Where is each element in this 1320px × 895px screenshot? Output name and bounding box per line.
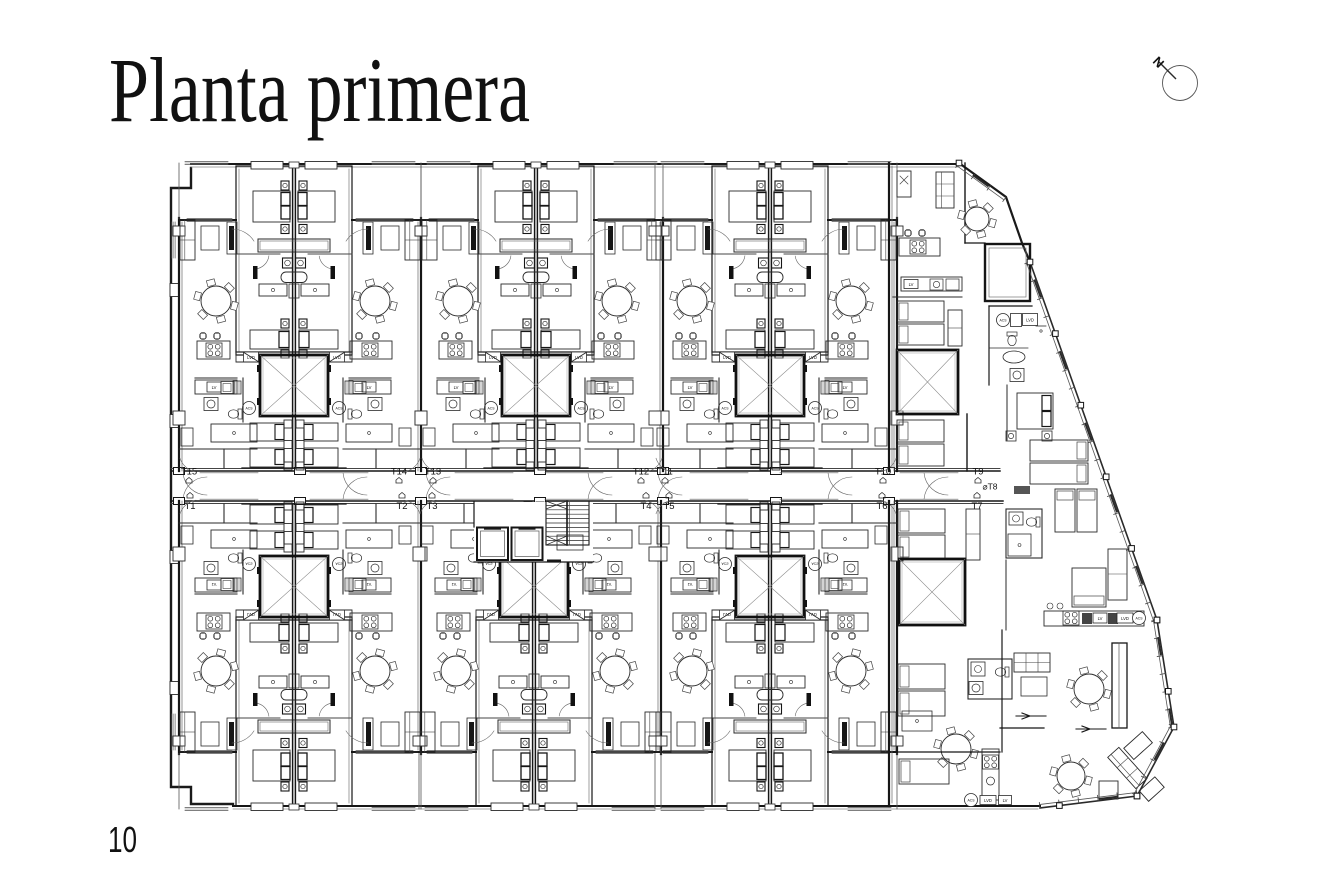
svg-text:LV: LV <box>688 385 693 390</box>
svg-text:ACS: ACS <box>336 407 344 411</box>
svg-text:T3: T3 <box>426 501 437 512</box>
svg-text:ACS: ACS <box>1136 617 1144 621</box>
svg-text:ACS: ACS <box>722 407 730 411</box>
svg-text:ACS: ACS <box>1000 319 1008 323</box>
svg-text:ACS: ACS <box>812 407 820 411</box>
svg-text:ACS: ACS <box>968 799 976 803</box>
svg-text:LV: LV <box>367 385 372 390</box>
svg-text:ACS: ACS <box>812 561 820 565</box>
svg-text:Planta primera: Planta primera <box>109 39 530 141</box>
svg-text:T2: T2 <box>396 501 407 512</box>
svg-text:LV: LV <box>1098 616 1103 621</box>
svg-text:LV: LV <box>1003 798 1008 803</box>
svg-text:LV: LV <box>843 582 848 587</box>
svg-text:LV: LV <box>454 385 459 390</box>
svg-text:T4: T4 <box>640 501 651 512</box>
svg-text:T1: T1 <box>184 501 195 512</box>
svg-text:T13: T13 <box>425 467 441 478</box>
svg-text:T15: T15 <box>181 467 197 478</box>
svg-text:LV: LV <box>607 582 612 587</box>
svg-text:LVD: LVD <box>1026 317 1034 322</box>
svg-text:LV: LV <box>609 385 614 390</box>
svg-text:LV: LV <box>909 282 914 287</box>
svg-text:⌀T8: ⌀T8 <box>982 482 997 492</box>
svg-text:LV: LV <box>688 582 693 587</box>
svg-text:ACS: ACS <box>246 407 254 411</box>
svg-text:ACS: ACS <box>488 407 496 411</box>
svg-text:ACS: ACS <box>722 561 730 565</box>
svg-text:T7: T7 <box>971 501 982 512</box>
svg-text:LV: LV <box>212 582 217 587</box>
svg-text:T9: T9 <box>972 467 983 478</box>
svg-text:T11: T11 <box>657 467 673 478</box>
svg-text:T6: T6 <box>876 501 887 512</box>
svg-text:T12: T12 <box>633 467 649 478</box>
svg-text:T14: T14 <box>391 467 407 478</box>
svg-text:ACS: ACS <box>246 561 254 565</box>
svg-text:ACS: ACS <box>578 407 586 411</box>
svg-text:10: 10 <box>108 819 137 860</box>
svg-text:ACS: ACS <box>336 561 344 565</box>
svg-text:LV: LV <box>212 385 217 390</box>
svg-text:LVD: LVD <box>984 798 992 803</box>
svg-text:LVD: LVD <box>1121 616 1129 621</box>
svg-text:LV: LV <box>843 385 848 390</box>
svg-text:LV: LV <box>367 582 372 587</box>
svg-text:LV: LV <box>452 582 457 587</box>
